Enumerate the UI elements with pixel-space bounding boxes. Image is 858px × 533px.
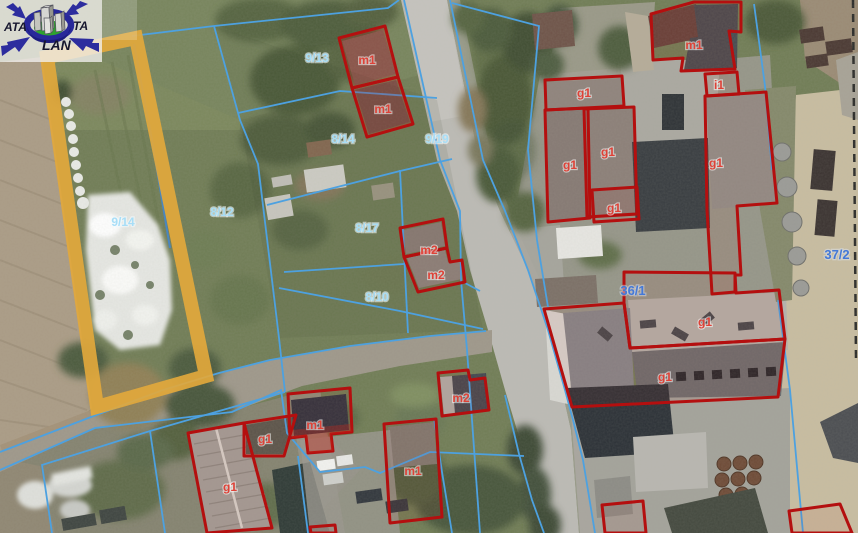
svg-text:9/19: 9/19 [425,132,449,146]
svg-text:m2: m2 [452,391,470,405]
svg-text:m1: m1 [358,53,376,67]
svg-text:m1: m1 [306,418,324,432]
svg-text:g1: g1 [709,156,723,170]
svg-text:m2: m2 [427,268,445,282]
svg-text:8/17: 8/17 [355,221,379,235]
svg-text:TA: TA [73,19,88,33]
svg-text:8/12: 8/12 [210,205,234,219]
svg-text:g1: g1 [658,370,672,384]
svg-text:g1: g1 [563,158,577,172]
svg-text:LAN: LAN [42,37,72,53]
svg-text:g1: g1 [607,201,621,215]
svg-text:m1: m1 [404,464,422,478]
svg-text:8/14: 8/14 [331,132,355,146]
svg-text:9/14: 9/14 [111,215,135,229]
svg-text:g1: g1 [223,480,237,494]
svg-text:g1: g1 [258,432,272,446]
svg-text:m1: m1 [685,38,703,52]
svg-text:g1: g1 [698,315,712,329]
svg-text:m1: m1 [374,102,392,116]
svg-text:36/1: 36/1 [620,283,645,298]
svg-text:m2: m2 [420,243,438,257]
svg-text:8/10: 8/10 [365,290,389,304]
svg-text:ATA: ATA [3,20,27,34]
svg-text:i1: i1 [714,78,724,92]
svg-text:37/2: 37/2 [824,247,849,262]
svg-text:g1: g1 [577,86,591,100]
svg-text:9/13: 9/13 [305,51,329,65]
svg-text:g1: g1 [601,145,615,159]
